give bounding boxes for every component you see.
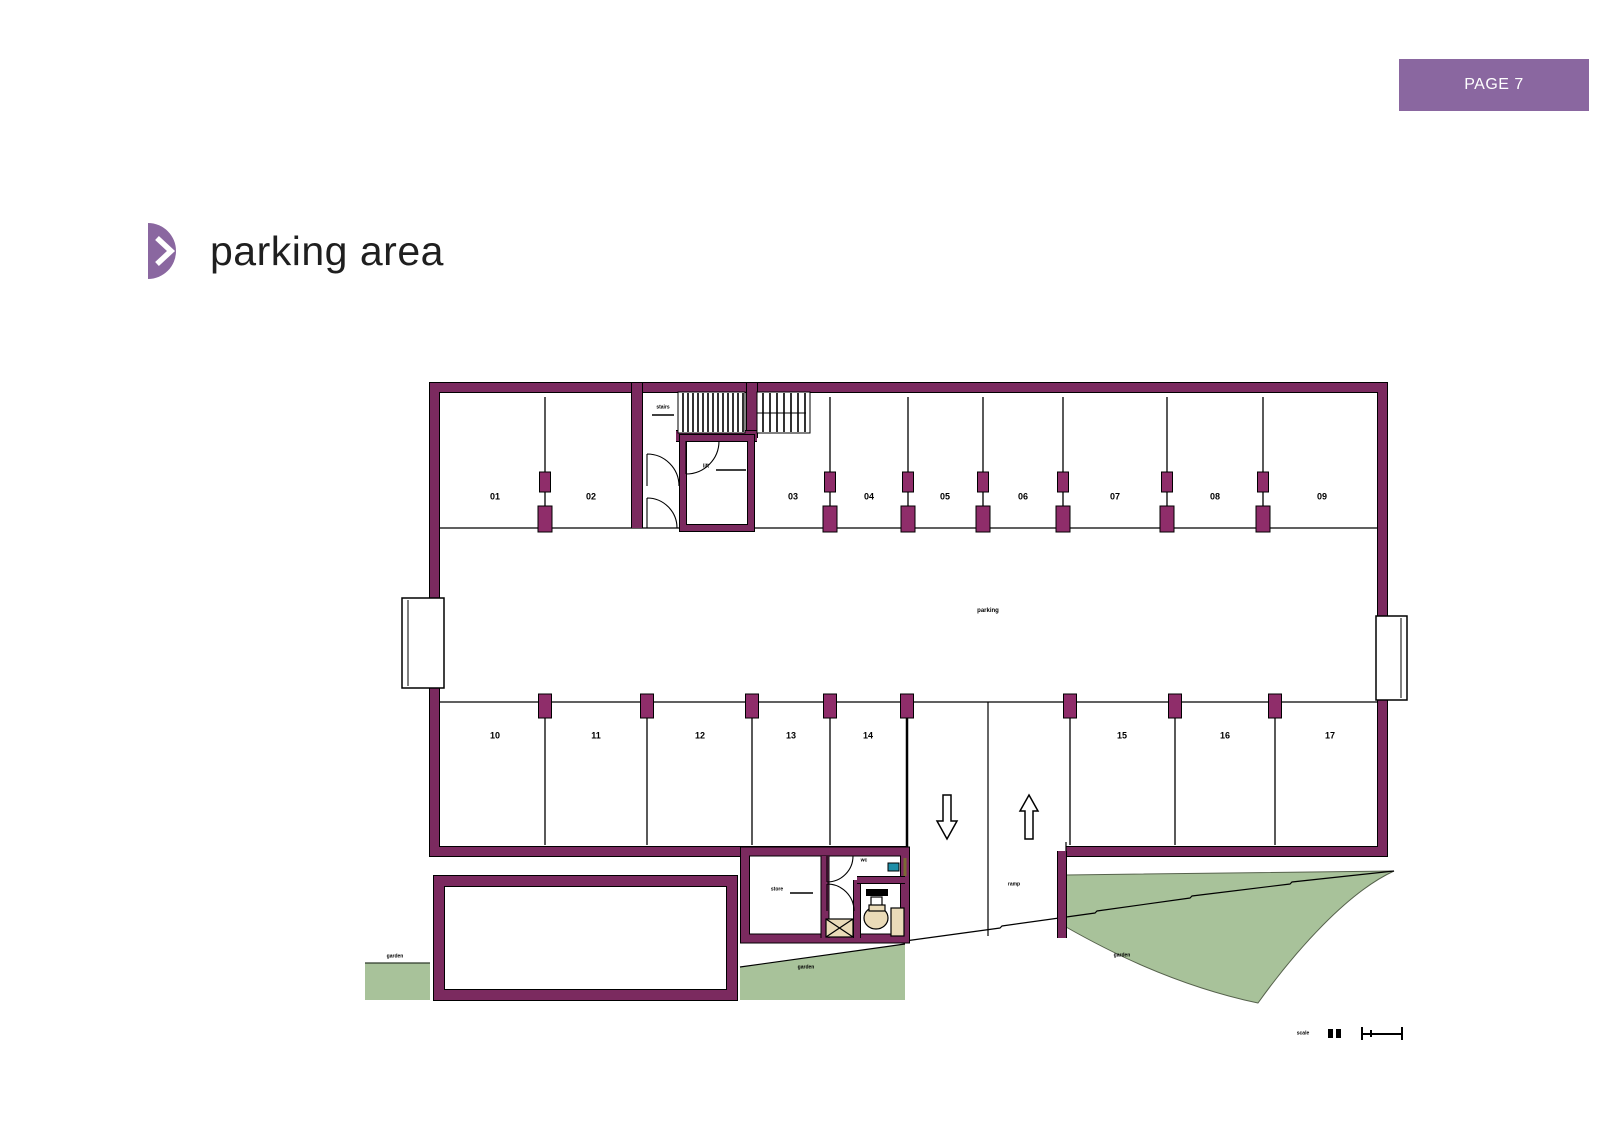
garden-label-right: garden [1114,954,1131,959]
green-area-left [365,963,430,1000]
aisle-opening-right [1376,616,1407,700]
shaft-x-box [826,919,853,937]
stall-number: 15 [1117,732,1127,741]
aisle-opening-left [402,598,444,688]
stall-number: 01 [490,493,500,502]
scale-bar [1328,1027,1402,1040]
stall-number: 10 [490,732,500,741]
stall-number: 07 [1110,493,1120,502]
stall-number: 08 [1210,493,1220,502]
garden-label-mid: garden [798,966,815,971]
stairs-hatch [678,392,810,433]
page: PAGE 7 parking area [0,0,1600,1131]
garden-label-left: garden [387,955,404,960]
garage-room [434,876,737,1000]
stall-number: 05 [940,493,950,502]
stairs-label: stairs [656,406,669,411]
ramp-label: ramp [1008,883,1020,888]
stall-number: 02 [586,493,596,502]
stall-number: 14 [863,732,873,741]
washbasin-icon [888,863,899,871]
scale-label: scale [1297,1032,1310,1037]
wc-label: wc [861,859,868,864]
basin-fixture [891,908,904,936]
green-area-middle [740,944,905,1000]
stall-number: 03 [788,493,798,502]
stall-number: 12 [695,732,705,741]
stall-number: 04 [864,493,874,502]
stall-number: 16 [1220,732,1230,741]
stall-number: 06 [1018,493,1028,502]
lift-label: lift [703,465,709,470]
stall-number: 09 [1317,493,1327,502]
stall-number: 13 [786,732,796,741]
stall-number: 11 [591,732,601,741]
floor-plan [0,0,1600,1131]
store-label: store [771,888,783,893]
stall-number: 17 [1325,732,1335,741]
aisle-label: parking [977,608,999,614]
